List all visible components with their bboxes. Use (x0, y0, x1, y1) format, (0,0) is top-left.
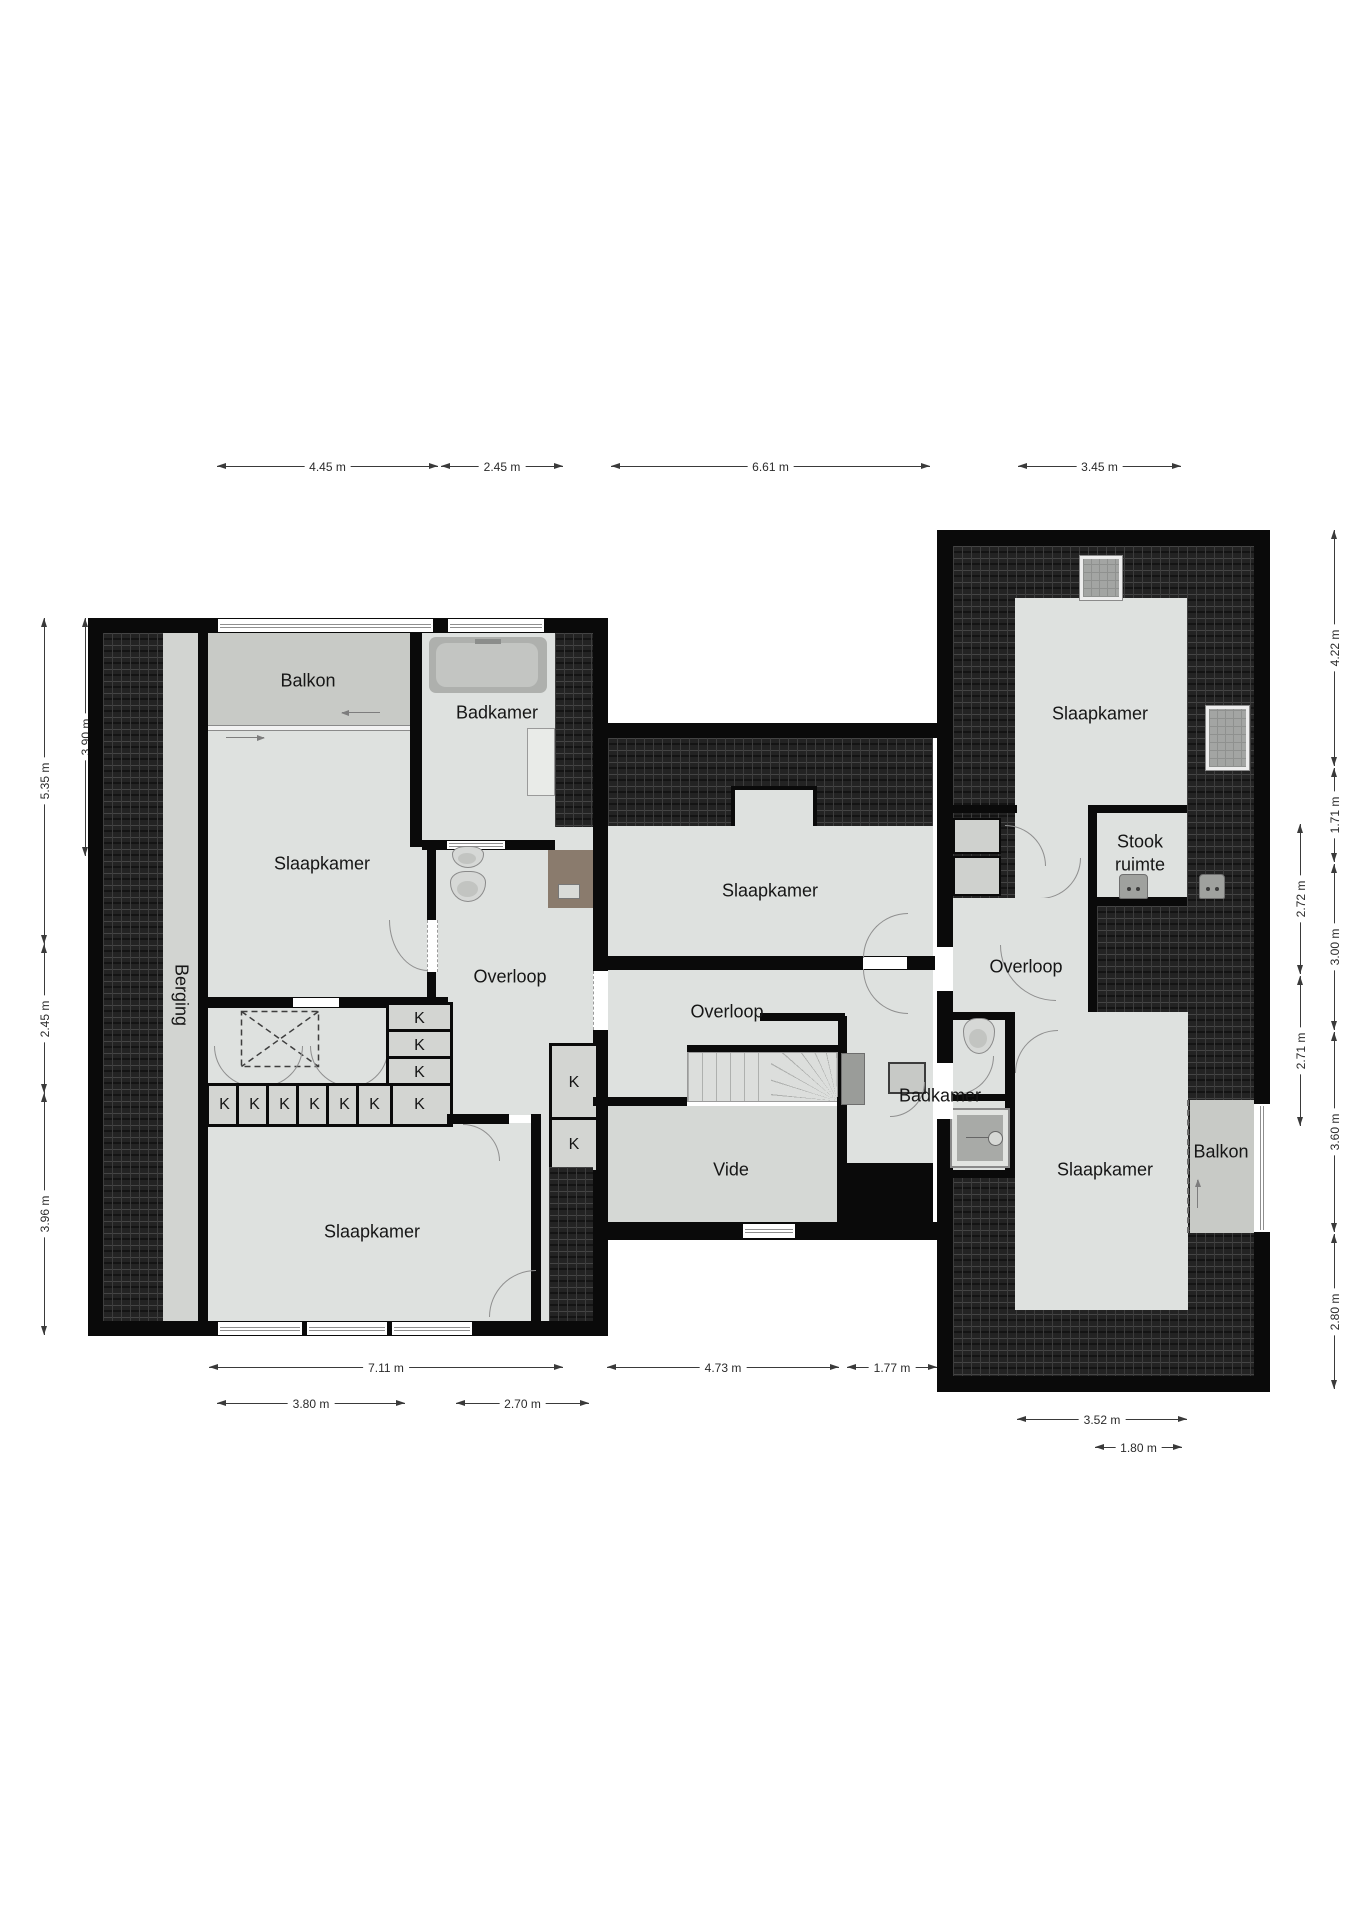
closet-label: K (339, 1096, 350, 1114)
dimension-bottom-3: 1.77 m (847, 1367, 937, 1368)
vide-wall (593, 1097, 687, 1106)
closet-cell (953, 856, 1001, 896)
dimension-label: 2.70 m (499, 1397, 546, 1411)
middle-top-wall (593, 723, 953, 738)
berging-roof (103, 633, 163, 1321)
shower-left (548, 850, 593, 908)
dimension-left-1: 5.35 m (44, 618, 45, 944)
closet-label: K (414, 1064, 425, 1082)
bathroom-cabinet (527, 728, 555, 796)
room-label-vide: Vide (713, 1160, 749, 1181)
balcony-right (1190, 1100, 1254, 1233)
closet-label: K (249, 1096, 260, 1114)
closet-label: K (309, 1096, 320, 1114)
window (307, 1322, 387, 1335)
dimension-label: 2.72 m (1294, 876, 1308, 923)
stairs-winder (771, 1052, 838, 1102)
right-wall-segment (953, 805, 1017, 813)
dimension-right-inner-1: 2.72 m (1300, 824, 1301, 974)
closet-label: K (219, 1096, 230, 1114)
closet-label: K (569, 1136, 580, 1154)
dimension-label: 3.00 m (1328, 924, 1342, 971)
skylight-icon (1080, 556, 1122, 600)
dimension-label: 2.80 m (1328, 1288, 1342, 1335)
boiler-icon (1199, 874, 1225, 899)
bedroom-wall (447, 1114, 509, 1124)
closet-k: K (549, 1117, 599, 1173)
dimension-top-4: 3.45 m (1018, 466, 1181, 467)
dimension-label: 2.45 m (479, 460, 526, 474)
balcony-door-line (1187, 1100, 1189, 1233)
door-opening (427, 920, 438, 972)
dimension-top-1: 4.45 m (217, 466, 438, 467)
room-label-slaapkamer-right-top: Slaapkamer (1052, 704, 1148, 725)
dimension-label: 7.11 m (363, 1361, 409, 1375)
closet-label: K (569, 1074, 580, 1092)
shower-head-icon (988, 1131, 1003, 1146)
closet-label: K (279, 1096, 290, 1114)
landing-side-wall (1088, 898, 1097, 1012)
window (743, 1224, 795, 1238)
room-label-slaapkamer-upper-left: Slaapkamer (274, 854, 370, 875)
dimension-left-3: 3.96 m (44, 1093, 45, 1335)
door-opening (863, 957, 907, 969)
dimension-bottom-1: 7.11 m (209, 1367, 563, 1368)
room-label-badkamer-left: Badkamer (456, 703, 538, 724)
slide-arrow-icon (342, 712, 380, 713)
dimension-label: 4.22 m (1328, 625, 1342, 672)
dimension-label: 3.52 m (1079, 1413, 1126, 1427)
dimension-right-2: 1.71 m (1334, 768, 1335, 862)
dimension-right-5: 2.80 m (1334, 1234, 1335, 1389)
dimension-right-inner-2: 2.71 m (1300, 976, 1301, 1126)
dimension-label: 1.71 m (1328, 792, 1342, 839)
closet-label: K (369, 1096, 380, 1114)
window (1254, 1104, 1270, 1232)
dimension-right-3: 3.00 m (1334, 864, 1335, 1030)
room-label-overloop-middle: Overloop (690, 1002, 763, 1023)
room-label-stookruimte: Stook ruimte (1092, 831, 1188, 876)
shower-head-icon (558, 884, 580, 899)
dimension-label: 3.60 m (1328, 1109, 1342, 1156)
dimension-top-3: 6.61 m (611, 466, 930, 467)
dimension-label: 1.80 m (1115, 1441, 1162, 1455)
skylight-icon (1206, 706, 1249, 770)
floor-plan: 4.45 m 2.45 m 6.61 m 3.45 m 3.90 m 5.35 … (0, 0, 1358, 1920)
corridor-opening (293, 998, 339, 1007)
roof-strip-left-lower (549, 1167, 593, 1321)
bathroom-cabinet (841, 1053, 865, 1105)
dimension-label: 5.35 m (38, 758, 52, 805)
closet-cell (953, 818, 1001, 854)
room-label-balkon-left: Balkon (280, 671, 335, 692)
slide-arrow-icon (226, 737, 264, 738)
room-label-badkamer-middle: Badkamer (899, 1086, 981, 1107)
stairs (687, 1052, 773, 1102)
room-label-slaapkamer-middle: Slaapkamer (722, 881, 818, 902)
dimension-label: 2.45 m (38, 995, 52, 1042)
dimension-label: 4.73 m (700, 1361, 747, 1375)
berging-wall (198, 633, 208, 1321)
stook-top-wall (1088, 805, 1187, 813)
vestibule-wall (760, 1013, 845, 1021)
boiler-icon (1119, 874, 1148, 899)
window (448, 619, 544, 632)
dimension-label: 4.45 m (304, 460, 351, 474)
room-label-berging: Berging (171, 964, 192, 1026)
window (392, 1322, 472, 1335)
dimension-left-2: 2.45 m (44, 944, 45, 1093)
closet-label: K (414, 1010, 425, 1028)
middle-bathroom-floor (845, 1100, 933, 1163)
dimension-left-inner-1: 3.90 m (85, 618, 86, 856)
closet-k: K (386, 1083, 453, 1127)
window (218, 619, 433, 632)
slide-arrow-icon (1197, 1180, 1198, 1208)
dimension-bottom-right-2: 1.80 m (1095, 1447, 1182, 1448)
room-label-balkon-right: Balkon (1193, 1142, 1248, 1163)
dimension-bottom-5: 2.70 m (456, 1403, 589, 1404)
bathroom-bottom-wall (937, 1170, 1015, 1178)
dimension-label: 3.45 m (1076, 460, 1123, 474)
dimension-bottom-2: 4.73 m (607, 1367, 839, 1368)
room-label-slaapkamer-right-bottom: Slaapkamer (1057, 1160, 1153, 1181)
room-label-overloop-right: Overloop (989, 957, 1062, 978)
bathroom-wall (410, 633, 422, 847)
door-opening (935, 947, 953, 991)
dimension-label: 6.61 m (747, 460, 794, 474)
dimension-label: 3.96 m (38, 1191, 52, 1238)
room-label-overloop-left: Overloop (473, 967, 546, 988)
dimension-bottom-4: 3.80 m (217, 1403, 405, 1404)
dimension-label: 2.71 m (1294, 1028, 1308, 1075)
dimension-bottom-right-1: 3.52 m (1017, 1419, 1187, 1420)
bathtub-icon (429, 637, 547, 693)
dormer (731, 786, 817, 830)
closet-k: K (549, 1043, 599, 1122)
closet-label: K (414, 1096, 425, 1114)
dimension-label: 3.80 m (288, 1397, 335, 1411)
stair-wall (687, 1045, 839, 1052)
window (218, 1322, 302, 1335)
balcony-door-rail (208, 725, 410, 731)
room-label-slaapkamer-lower-left: Slaapkamer (324, 1222, 420, 1243)
dimension-top-2: 2.45 m (441, 466, 563, 467)
dimension-right-1: 4.22 m (1334, 530, 1335, 766)
dimension-right-4: 3.60 m (1334, 1032, 1335, 1232)
dimension-label: 1.77 m (869, 1361, 916, 1375)
solid-wall-block (845, 1163, 933, 1222)
closet-label: K (414, 1037, 425, 1055)
closet-k: K (356, 1083, 393, 1127)
roof-strip-left (555, 633, 593, 827)
